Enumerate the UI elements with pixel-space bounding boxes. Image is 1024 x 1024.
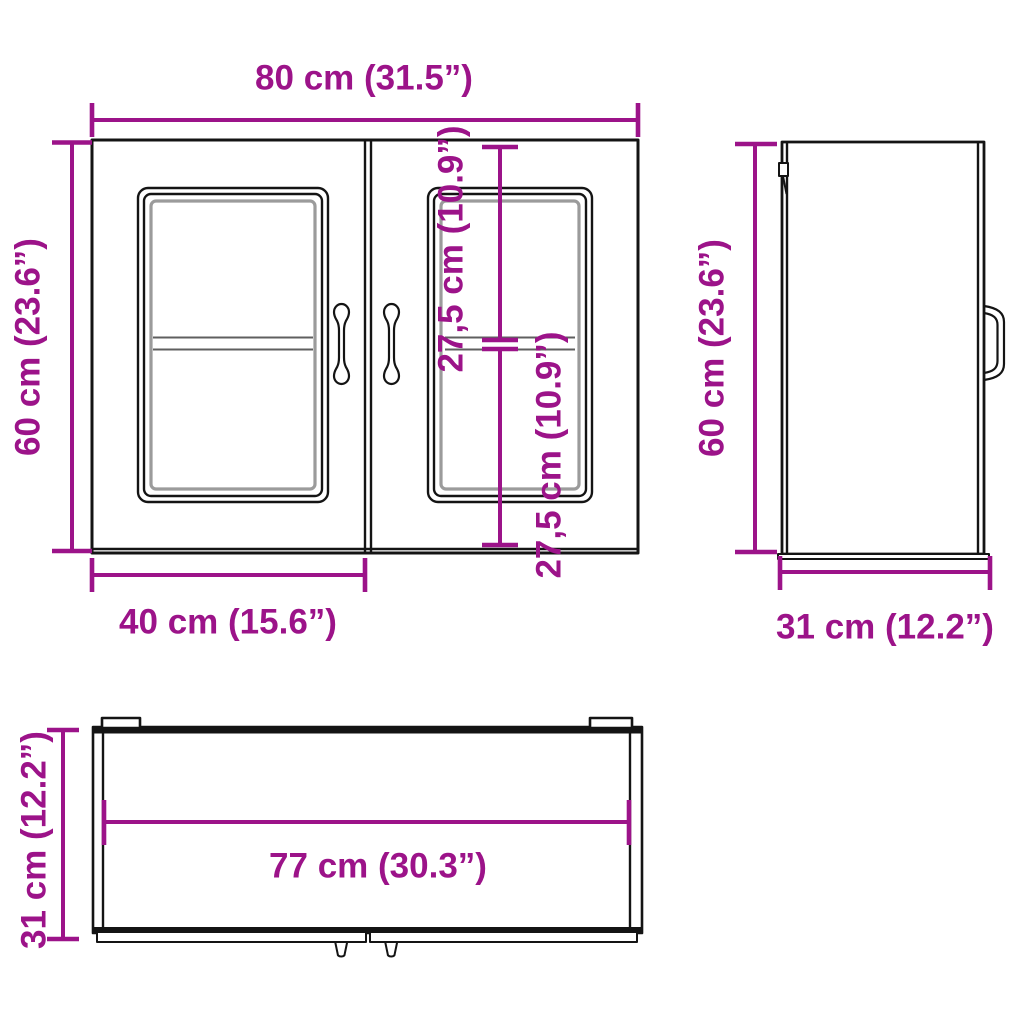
- top-right-door-slab: [370, 932, 637, 942]
- dim-front-height-label: 60 cm (23.6”): [9, 238, 48, 456]
- side-view: [778, 142, 1004, 559]
- side-bottom-lip: [778, 554, 989, 559]
- diagram-canvas: 80 cm (31.5”) 60 cm (23.6”) 40 cm (15.6”…: [0, 0, 1024, 1024]
- dim-front-width-label: 80 cm (31.5”): [255, 59, 473, 98]
- dim-side-height-label: 60 cm (23.6”): [693, 239, 732, 457]
- dim-lower-section-label: 27,5 cm (10.9”): [530, 331, 569, 578]
- product-dimension-diagram: 80 cm (31.5”) 60 cm (23.6”) 40 cm (15.6”…: [0, 0, 1024, 1024]
- side-handle-inner: [984, 313, 998, 373]
- dim-top-inner-width: 77 cm (30.3”): [104, 800, 629, 886]
- left-window-outer-frame: [138, 188, 328, 502]
- left-door-handle: [334, 304, 349, 384]
- dim-side-depth: 31 cm (12.2”): [776, 556, 994, 647]
- top-view: [93, 718, 642, 957]
- dim-upper-section-label: 27,5 cm (10.9”): [432, 125, 471, 372]
- top-body: [93, 727, 642, 933]
- dimension-layer: 80 cm (31.5”) 60 cm (23.6”) 40 cm (15.6”…: [9, 59, 994, 949]
- left-window-mid-frame: [144, 194, 322, 496]
- top-right-mount-bracket: [590, 718, 632, 728]
- top-left-door-knob: [335, 942, 347, 957]
- side-wall-bracket: [779, 163, 788, 176]
- left-door-glass-window: [138, 188, 328, 502]
- top-left-door-slab: [97, 932, 366, 942]
- top-right-door-knob: [385, 942, 397, 957]
- left-window-inner-frame: [151, 201, 315, 489]
- dim-front-width: 80 cm (31.5”): [92, 59, 638, 138]
- dim-top-inner-width-label: 77 cm (30.3”): [269, 847, 487, 886]
- dim-top-depth: 31 cm (12.2”): [15, 730, 80, 949]
- top-left-mount-bracket: [102, 718, 140, 728]
- dim-front-height: 60 cm (23.6”): [9, 142, 93, 552]
- dim-side-depth-label: 31 cm (12.2”): [776, 608, 994, 647]
- dim-side-height: 60 cm (23.6”): [693, 144, 778, 552]
- dim-front-door-width: 40 cm (15.6”): [92, 558, 365, 642]
- side-body: [782, 142, 984, 554]
- dim-top-depth-label: 31 cm (12.2”): [15, 731, 54, 949]
- dim-front-door-width-label: 40 cm (15.6”): [119, 603, 337, 642]
- right-door-handle: [384, 304, 399, 384]
